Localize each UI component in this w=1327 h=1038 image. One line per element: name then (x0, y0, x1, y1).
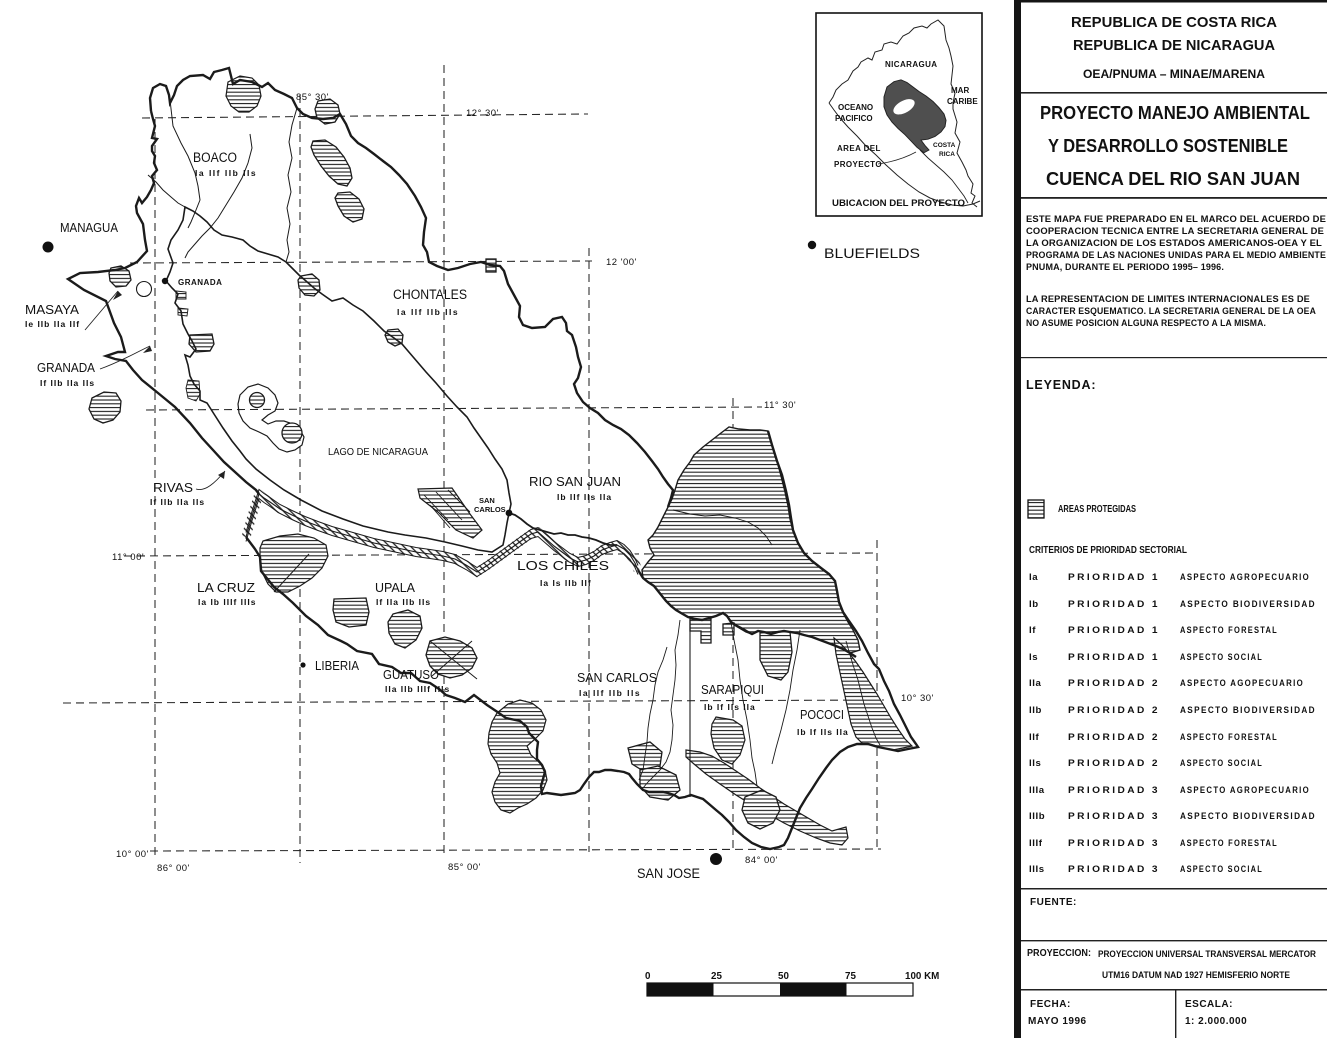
svg-text:ASPECTO SOCIAL: ASPECTO SOCIAL (1180, 758, 1263, 769)
svg-text:ASPECTO FORESTAL: ASPECTO FORESTAL (1180, 732, 1278, 743)
svg-text:ASPECTO SOCIAL: ASPECTO SOCIAL (1180, 864, 1263, 875)
svg-text:LAGO DE NICARAGUA: LAGO DE NICARAGUA (328, 446, 428, 458)
svg-text:ESTE MAPA FUE PREPARADO EN E: ESTE MAPA FUE PREPARADO EN EL MARCO DEL … (1026, 214, 1326, 224)
svg-text:Ib IIf IIs IIa: Ib IIf IIs IIa (557, 492, 612, 502)
svg-text:10° 30': 10° 30' (901, 693, 934, 704)
svg-text:PROYECTO: PROYECTO (834, 160, 882, 169)
svg-text:LA REPRESENTACION DE LIMITE: LA REPRESENTACION DE LIMITES INTERNACION… (1026, 294, 1310, 304)
svg-text:RIVAS: RIVAS (153, 480, 193, 495)
svg-text:IIa IIb IIIf IIIs: IIa IIb IIIf IIIs (385, 684, 450, 694)
svg-text:ASPECTO BIODIVERSIDAD: ASPECTO BIODIVERSIDAD (1180, 599, 1316, 610)
svg-text:PNUMA, DURANTE EL PERIODO 1995: PNUMA, DURANTE EL PERIODO 1995– 1996. (1026, 262, 1224, 272)
svg-text:RICA: RICA (939, 151, 955, 158)
svg-text:CUENCA DEL RIO SAN JUAN: CUENCA DEL RIO SAN JUAN (1046, 168, 1300, 189)
svg-text:PRIORIDAD 2: PRIORIDAD 2 (1068, 732, 1160, 743)
svg-text:FUENTE:: FUENTE: (1030, 897, 1077, 908)
svg-text:PRIORIDAD 2: PRIORIDAD 2 (1068, 678, 1160, 689)
svg-text:UTM16 DATUM NAD 1927 HEMISFERI: UTM16 DATUM NAD 1927 HEMISFERIO NORTE (1102, 970, 1291, 981)
svg-text:86° 00': 86° 00' (157, 863, 190, 874)
svg-text:PRIORIDAD 2: PRIORIDAD 2 (1068, 705, 1160, 716)
svg-text:Ia IIf IIb IIs: Ia IIf IIb IIs (579, 688, 641, 698)
svg-text:Ia IIf IIb IIs: Ia IIf IIb IIs (397, 307, 459, 317)
svg-text:MAR: MAR (951, 86, 969, 95)
svg-text:BOACO: BOACO (193, 150, 237, 165)
svg-text:PRIORIDAD 3: PRIORIDAD 3 (1068, 864, 1160, 875)
svg-text:PRIORIDAD 3: PRIORIDAD 3 (1068, 838, 1160, 849)
svg-text:IIIa: IIIa (1029, 785, 1045, 796)
svg-text:PROGRAMA DE LAS NACIONES UNIDA: PROGRAMA DE LAS NACIONES UNIDAS PARA EL … (1026, 250, 1326, 260)
svg-text:CARLOS: CARLOS (474, 505, 506, 514)
svg-text:FECHA:: FECHA: (1030, 999, 1071, 1010)
svg-text:REPUBLICA DE NICARAGUA: REPUBLICA DE NICARAGUA (1073, 37, 1275, 54)
svg-text:Ib If IIs IIa: Ib If IIs IIa (797, 727, 849, 737)
svg-text:Ib If IIs IIa: Ib If IIs IIa (704, 702, 756, 712)
svg-text:LEYENDA:: LEYENDA: (1026, 378, 1096, 392)
svg-text:LA ORGANIZACION DE LOS ESTA: LA ORGANIZACION DE LOS ESTADOS AMERICANO… (1026, 238, 1322, 248)
svg-text:ASPECTO AGROPECUARIO: ASPECTO AGROPECUARIO (1180, 572, 1310, 583)
svg-text:SAN CARLOS: SAN CARLOS (577, 670, 657, 685)
svg-text:IIIf: IIIf (1029, 838, 1043, 849)
svg-text:PRIORIDAD 2: PRIORIDAD 2 (1068, 758, 1160, 769)
svg-text:Is: Is (1029, 652, 1038, 663)
svg-text:PACIFICO: PACIFICO (835, 114, 873, 123)
svg-text:1: 2.000.000: 1: 2.000.000 (1185, 1016, 1247, 1027)
svg-text:BLUEFIELDS: BLUEFIELDS (824, 246, 920, 261)
svg-text:Ia IIf IIb IIs: Ia IIf IIb IIs (195, 168, 257, 178)
svg-text:PROYECCION:: PROYECCION: (1027, 948, 1091, 959)
svg-text:NO ASUME POSICION ALGUNA RESPE: NO ASUME POSICION ALGUNA RESPECTO A LA M… (1026, 318, 1266, 328)
svg-text:SAN: SAN (479, 496, 495, 505)
svg-text:OCEANO: OCEANO (838, 103, 873, 112)
svg-text:CARIBE: CARIBE (947, 97, 978, 106)
svg-text:If: If (1029, 625, 1036, 636)
svg-text:CRITERIOS DE PRIORIDAD SECTORI: CRITERIOS DE PRIORIDAD SECTORIAL (1029, 545, 1187, 556)
svg-text:IIIs: IIIs (1029, 864, 1045, 875)
svg-text:SARAPIQUI: SARAPIQUI (701, 682, 764, 697)
svg-text:CARACTER ESQUEMATICO. LA SECR: CARACTER ESQUEMATICO. LA SECRETARIA GENE… (1026, 306, 1316, 316)
svg-text:PRIORIDAD 1: PRIORIDAD 1 (1068, 599, 1160, 610)
svg-text:11° 00': 11° 00' (112, 552, 144, 563)
svg-text:75: 75 (845, 971, 856, 982)
svg-text:PROYECCION UNIVERSAL TRANSVERS: PROYECCION UNIVERSAL TRANSVERSAL MERCATO… (1098, 949, 1316, 960)
svg-text:LOS CHILES: LOS CHILES (517, 558, 609, 573)
svg-text:If IIb IIa IIs: If IIb IIa IIs (40, 378, 95, 388)
svg-text:SAN JOSE: SAN JOSE (637, 866, 700, 881)
svg-text:LA CRUZ: LA CRUZ (197, 580, 255, 595)
svg-text:ASPECTO AGOPECUARIO: ASPECTO AGOPECUARIO (1180, 678, 1304, 689)
svg-text:If IIa IIb IIs: If IIa IIb IIs (376, 597, 431, 607)
svg-text:Ia Is IIb IIf: Ia Is IIb IIf (540, 578, 592, 588)
svg-text:AREA DEL: AREA DEL (837, 144, 881, 153)
svg-text:11° 30': 11° 30' (764, 400, 796, 411)
svg-text:25: 25 (711, 971, 722, 982)
svg-text:50: 50 (778, 971, 789, 982)
svg-text:85° 30': 85° 30' (296, 92, 329, 103)
svg-text:ASPECTO BIODIVERSIDAD: ASPECTO BIODIVERSIDAD (1180, 811, 1316, 822)
svg-text:UBICACION DEL PROYECTO: UBICACION DEL PROYECTO (832, 198, 965, 208)
svg-text:100 KM: 100 KM (905, 971, 939, 982)
svg-text:IIb: IIb (1029, 705, 1042, 716)
svg-text:PRIORIDAD 1: PRIORIDAD 1 (1068, 572, 1160, 583)
svg-text:Ib: Ib (1029, 599, 1039, 610)
svg-text:If IIb IIa IIs: If IIb IIa IIs (150, 497, 205, 507)
svg-text:ASPECTO AGROPECUARIO: ASPECTO AGROPECUARIO (1180, 785, 1310, 796)
svg-text:IIf: IIf (1029, 732, 1040, 743)
svg-text:12 '00': 12 '00' (606, 257, 637, 268)
svg-text:12° 30': 12° 30' (466, 108, 499, 119)
svg-text:PRIORIDAD 3: PRIORIDAD 3 (1068, 811, 1160, 822)
svg-text:NICARAGUA: NICARAGUA (885, 60, 938, 69)
svg-text:ASPECTO FORESTAL: ASPECTO FORESTAL (1180, 838, 1278, 849)
svg-text:0: 0 (645, 971, 651, 982)
svg-text:Ia Ib IIIf IIIs: Ia Ib IIIf IIIs (198, 597, 256, 607)
svg-text:IIIb: IIIb (1029, 811, 1045, 822)
svg-text:ASPECTO BIODIVERSIDAD: ASPECTO BIODIVERSIDAD (1180, 705, 1316, 716)
svg-text:LIBERIA: LIBERIA (315, 659, 360, 673)
svg-text:REPUBLICA DE COSTA RICA: REPUBLICA DE COSTA RICA (1071, 14, 1277, 31)
svg-text:IIs: IIs (1029, 758, 1041, 769)
svg-text:PRIORIDAD 1: PRIORIDAD 1 (1068, 625, 1160, 636)
svg-text:84° 00': 84° 00' (745, 855, 778, 866)
svg-text:GUATUSO: GUATUSO (383, 667, 439, 682)
svg-text:OEA/PNUMA – MINAE/MARENA: OEA/PNUMA – MINAE/MARENA (1083, 69, 1265, 81)
svg-text:AREAS PROTEGIDAS: AREAS PROTEGIDAS (1058, 504, 1136, 515)
svg-text:CHONTALES: CHONTALES (393, 287, 467, 302)
svg-text:COOPERACION TECNICA ENTRE L: COOPERACION TECNICA ENTRE LA SECRETARIA … (1026, 226, 1324, 236)
svg-text:Y DESARROLLO SOSTENIBLE: Y DESARROLLO SOSTENIBLE (1048, 135, 1288, 156)
svg-text:COSTA: COSTA (933, 142, 956, 149)
svg-text:MANAGUA: MANAGUA (60, 220, 118, 235)
svg-text:PROYECTO MANEJO AMBIENTAL: PROYECTO MANEJO AMBIENTAL (1040, 102, 1310, 123)
svg-text:POCOCI: POCOCI (800, 707, 844, 722)
svg-text:85° 00': 85° 00' (448, 862, 481, 873)
svg-text:IIa: IIa (1029, 678, 1042, 689)
svg-text:Ie IIb IIa IIf: Ie IIb IIa IIf (25, 319, 80, 329)
svg-text:PRIORIDAD 1: PRIORIDAD 1 (1068, 652, 1160, 663)
svg-text:PRIORIDAD 3: PRIORIDAD 3 (1068, 785, 1160, 796)
svg-text:MASAYA: MASAYA (25, 302, 79, 317)
svg-text:ESCALA:: ESCALA: (1185, 999, 1233, 1010)
svg-text:MAYO 1996: MAYO 1996 (1028, 1016, 1087, 1027)
svg-text:ASPECTO SOCIAL: ASPECTO SOCIAL (1180, 652, 1263, 663)
svg-text:10° 00': 10° 00' (116, 849, 149, 860)
svg-text:ASPECTO FORESTAL: ASPECTO FORESTAL (1180, 625, 1278, 636)
svg-text:GRANADA: GRANADA (178, 278, 222, 287)
svg-text:UPALA: UPALA (375, 580, 415, 595)
svg-text:Ia: Ia (1029, 572, 1038, 583)
svg-text:GRANADA: GRANADA (37, 360, 95, 375)
svg-text:RIO SAN JUAN: RIO SAN JUAN (529, 474, 621, 489)
